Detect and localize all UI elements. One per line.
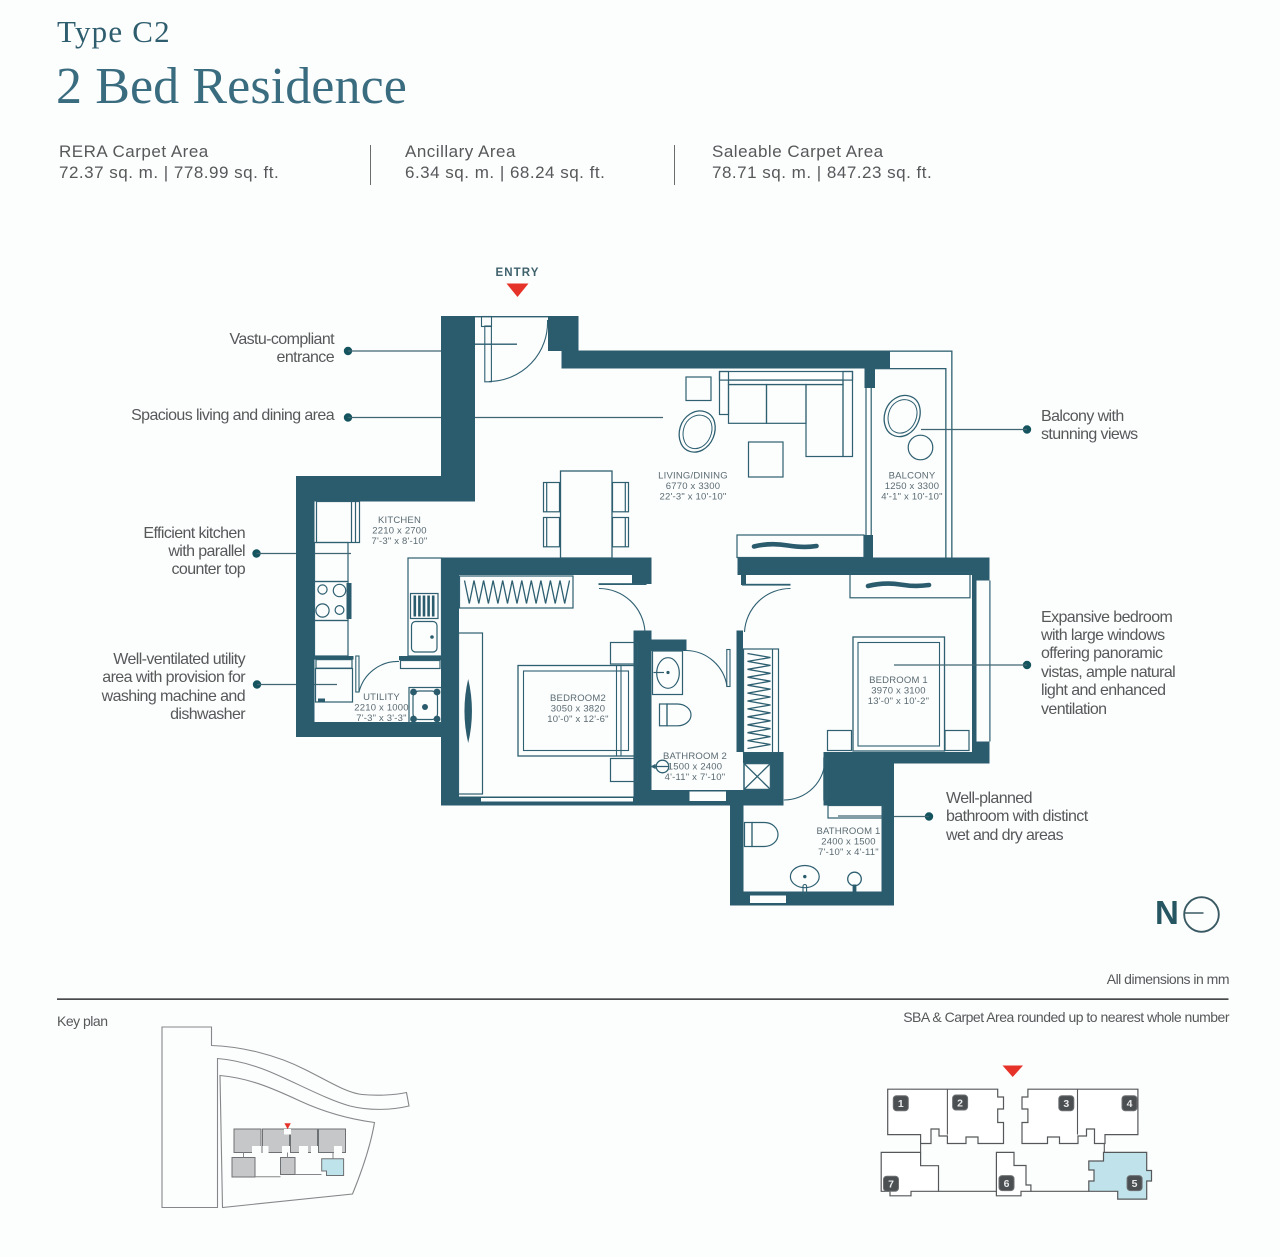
svg-text:BATHROOM 2: BATHROOM 2 (663, 751, 727, 762)
svg-text:BEDROOM2: BEDROOM2 (550, 693, 606, 704)
svg-text:3970 x 3100: 3970 x 3100 (871, 686, 926, 697)
svg-text:7'-10" x 4'-11": 7'-10" x 4'-11" (818, 847, 879, 858)
svg-text:3: 3 (1063, 1098, 1069, 1110)
svg-text:5: 5 (1132, 1178, 1138, 1190)
svg-text:4'-11" x 7'-10": 4'-11" x 7'-10" (665, 772, 726, 783)
svg-text:2210 x 2700: 2210 x 2700 (372, 526, 427, 537)
svg-text:BEDROOM 1: BEDROOM 1 (869, 675, 928, 686)
svg-text:7'-3" x 8'-10": 7'-3" x 8'-10" (372, 536, 428, 547)
svg-text:6770 x 3300: 6770 x 3300 (666, 481, 721, 492)
svg-text:BATHROOM 1: BATHROOM 1 (816, 826, 880, 837)
svg-text:6: 6 (1004, 1178, 1010, 1190)
svg-text:2400 x 1500: 2400 x 1500 (821, 837, 876, 848)
svg-text:1250 x 3300: 1250 x 3300 (885, 481, 940, 492)
svg-text:UTILITY: UTILITY (363, 692, 400, 703)
svg-text:10'-0" x 12'-6": 10'-0" x 12'-6" (547, 714, 608, 725)
svg-text:2210 x 1000: 2210 x 1000 (354, 703, 409, 714)
svg-text:7'-3" x 3'-3": 7'-3" x 3'-3" (356, 713, 406, 724)
svg-text:3050 x 3820: 3050 x 3820 (551, 704, 606, 715)
svg-text:4: 4 (1127, 1098, 1133, 1110)
svg-text:22'-3" x 10'-10": 22'-3" x 10'-10" (660, 492, 727, 503)
svg-text:KITCHEN: KITCHEN (378, 515, 421, 526)
svg-text:4'-1" x 10'-10": 4'-1" x 10'-10" (881, 492, 942, 503)
svg-text:BALCONY: BALCONY (889, 471, 936, 482)
svg-text:ENTRY: ENTRY (495, 267, 539, 279)
svg-text:7: 7 (888, 1179, 894, 1191)
svg-text:LIVING/DINING: LIVING/DINING (658, 471, 728, 482)
svg-text:1500 x 2400: 1500 x 2400 (668, 762, 723, 773)
svg-text:2: 2 (957, 1097, 963, 1109)
svg-text:1: 1 (898, 1098, 904, 1110)
svg-text:13'-0" x 10'-2": 13'-0" x 10'-2" (868, 696, 929, 707)
